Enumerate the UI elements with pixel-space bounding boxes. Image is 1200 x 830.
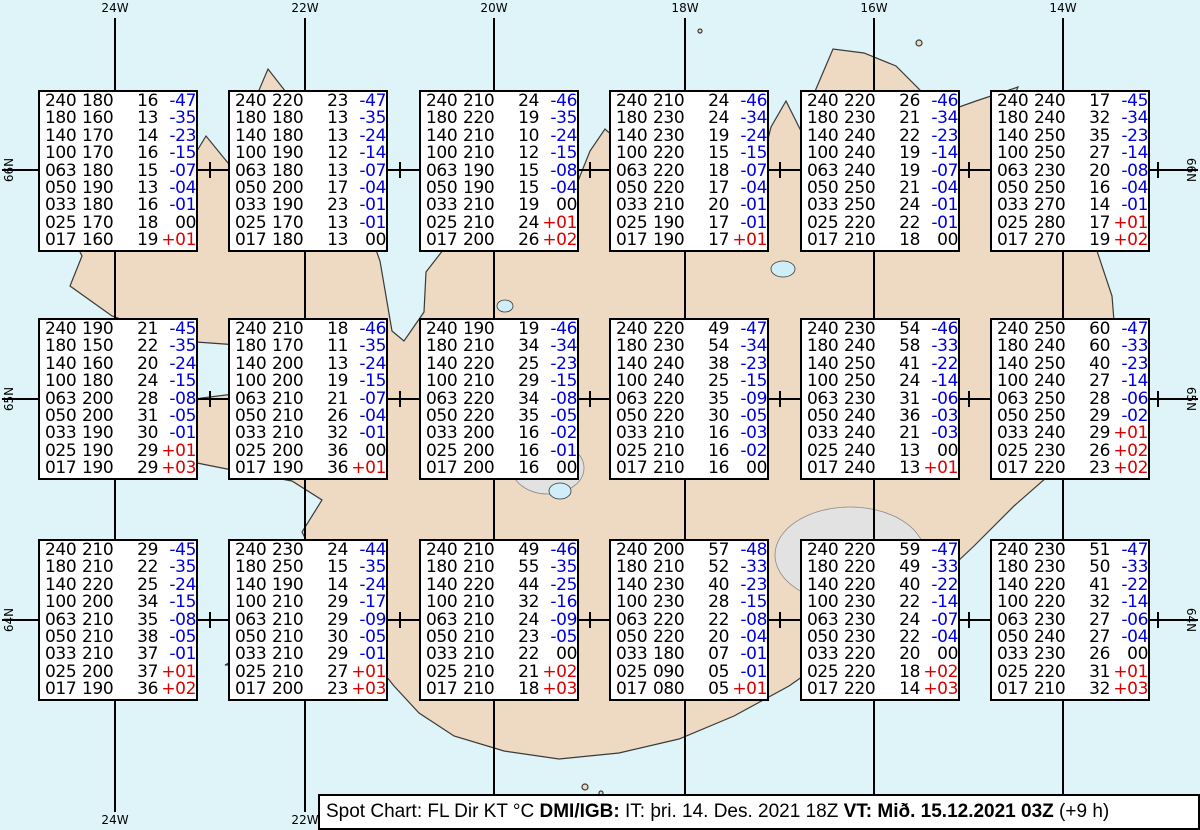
temp-cell: -15 (158, 594, 196, 611)
station-box-64N-14W: 24023051-4718023050-3314022041-221002203… (990, 539, 1150, 701)
station-box-66N-22W: 24022023-4718018013-3514018013-241001901… (228, 90, 388, 252)
station-box-65N-14W: 24025060-4718024060-3314025040-231002402… (990, 318, 1150, 480)
fl-cell: 017 (235, 681, 272, 698)
fl-cell: 100 (45, 373, 82, 390)
station-row: 10021029-17 (235, 594, 386, 611)
station-row: 01719036+02 (45, 681, 196, 698)
kt-cell: 32 (1079, 594, 1110, 611)
kt-cell: 19 (889, 145, 920, 162)
temp-cell: -14 (348, 145, 386, 162)
fl-cell: 017 (616, 460, 653, 477)
kt-cell: 27 (1079, 145, 1110, 162)
station-box-66N-20W: 24021024-4618022019-3514021010-241002101… (419, 90, 579, 252)
temp-cell: -15 (729, 594, 767, 611)
fl-cell: 100 (426, 373, 463, 390)
station-row: 10017016-15 (45, 145, 196, 162)
dir-cell: 230 (844, 594, 889, 611)
dir-cell: 210 (463, 681, 508, 698)
dir-cell: 220 (1034, 460, 1079, 477)
kt-cell: 12 (317, 145, 348, 162)
station-row: 10020019-15 (235, 373, 386, 390)
temp-cell: -15 (729, 145, 767, 162)
station-row: 10024027-14 (997, 373, 1148, 390)
caption-source: DMI/IGB: (540, 801, 620, 823)
dir-cell: 200 (82, 594, 127, 611)
kt-cell: 19 (317, 373, 348, 390)
kt-cell: 18 (889, 232, 920, 249)
station-row: 01721032+03 (997, 681, 1148, 698)
fl-cell: 017 (45, 232, 82, 249)
temp-cell: -14 (920, 145, 958, 162)
temp-cell: -17 (348, 594, 386, 611)
kt-cell: 23 (1079, 460, 1110, 477)
kt-cell: 19 (127, 232, 158, 249)
temp-cell: -14 (920, 373, 958, 390)
dir-cell: 170 (82, 145, 127, 162)
dir-cell: 250 (844, 373, 889, 390)
fl-cell: 100 (616, 145, 653, 162)
kt-cell: 28 (698, 594, 729, 611)
station-box-64N-24W: 24021029-4518021022-3514022025-241002003… (38, 539, 198, 701)
fl-cell: 017 (997, 460, 1034, 477)
station-row: 10024025-15 (616, 373, 767, 390)
fl-cell: 100 (997, 373, 1034, 390)
station-box-66N-14W: 24024017-4518024032-3414025035-231002502… (990, 90, 1150, 252)
dir-cell: 190 (653, 232, 698, 249)
temp-cell: 00 (348, 232, 386, 249)
station-row: 10020034-15 (45, 594, 196, 611)
dir-cell: 220 (1034, 594, 1079, 611)
kt-cell: 15 (698, 145, 729, 162)
temp-cell: -15 (158, 145, 196, 162)
dir-cell: 210 (463, 594, 508, 611)
caption-text: Spot Chart: FL Dir KT °C (326, 801, 540, 823)
fl-cell: 100 (235, 145, 272, 162)
dir-cell: 240 (653, 373, 698, 390)
dir-cell: 160 (82, 232, 127, 249)
temp-cell: +03 (1110, 681, 1148, 698)
station-row: 01721018+03 (426, 681, 577, 698)
dir-cell: 210 (1034, 681, 1079, 698)
kt-cell: 34 (127, 594, 158, 611)
dir-cell: 180 (272, 232, 317, 249)
dir-cell: 190 (82, 460, 127, 477)
kt-cell: 16 (508, 460, 539, 477)
fl-cell: 017 (807, 232, 844, 249)
temp-cell: +03 (920, 681, 958, 698)
dir-cell: 220 (653, 145, 698, 162)
temp-cell: +03 (539, 681, 577, 698)
station-row: 10019012-14 (235, 145, 386, 162)
kt-cell: 24 (127, 373, 158, 390)
kt-cell: 24 (889, 373, 920, 390)
station-row: 01719017+01 (616, 232, 767, 249)
temp-cell: +01 (920, 460, 958, 477)
station-row: 10024019-14 (807, 145, 958, 162)
station-row: 01722023+02 (997, 460, 1148, 477)
fl-cell: 100 (235, 373, 272, 390)
station-row: 01719029+03 (45, 460, 196, 477)
temp-cell: +01 (348, 460, 386, 477)
fl-cell: 017 (616, 232, 653, 249)
station-row: 10018024-15 (45, 373, 196, 390)
kt-cell: 23 (317, 681, 348, 698)
station-box-65N-22W: 24021018-4618017011-3514020013-241002001… (228, 318, 388, 480)
kt-cell: 13 (889, 460, 920, 477)
kt-cell: 27 (1079, 373, 1110, 390)
temp-cell: -14 (1110, 373, 1148, 390)
temp-cell: +01 (729, 232, 767, 249)
fl-cell: 100 (997, 594, 1034, 611)
fl-cell: 100 (426, 145, 463, 162)
dir-cell: 210 (653, 460, 698, 477)
dir-cell: 190 (272, 460, 317, 477)
fl-cell: 100 (807, 373, 844, 390)
fl-cell: 100 (807, 594, 844, 611)
kt-cell: 13 (317, 232, 348, 249)
station-row: 10023022-14 (807, 594, 958, 611)
station-row: 10022015-15 (616, 145, 767, 162)
station-row: 01722014+03 (807, 681, 958, 698)
dir-cell: 250 (1034, 145, 1079, 162)
station-row: 01719036+01 (235, 460, 386, 477)
dir-cell: 190 (272, 145, 317, 162)
station-box-66N-18W: 24021024-4618023024-3414023019-241002201… (609, 90, 769, 252)
station-box-64N-22W: 24023024-4418025015-3514019014-241002102… (228, 539, 388, 701)
temp-cell: -14 (1110, 145, 1148, 162)
kt-cell: 25 (698, 373, 729, 390)
fl-cell: 100 (616, 594, 653, 611)
station-row: 01716019+01 (45, 232, 196, 249)
station-box-65N-24W: 24019021-4518015022-3514016020-241001802… (38, 318, 198, 480)
fl-cell: 017 (45, 460, 82, 477)
dir-cell: 270 (1034, 232, 1079, 249)
temp-cell: -15 (729, 373, 767, 390)
station-row: 10021012-15 (426, 145, 577, 162)
caption-offset: (+9 h) (1054, 801, 1109, 823)
fl-cell: 017 (235, 232, 272, 249)
station-box-65N-16W: 24023054-4618024058-3314025041-221002502… (800, 318, 960, 480)
dir-cell: 200 (463, 460, 508, 477)
caption-valid-time: VT: Mið. 15.12.2021 03Z (844, 801, 1054, 823)
station-box-64N-16W: 24022059-4718022049-3314022040-221002302… (800, 539, 960, 701)
temp-cell: -15 (158, 373, 196, 390)
kt-cell: 19 (1079, 232, 1110, 249)
temp-cell: +03 (348, 681, 386, 698)
fl-cell: 017 (426, 460, 463, 477)
temp-cell: -15 (348, 373, 386, 390)
fl-cell: 017 (807, 681, 844, 698)
kt-cell: 36 (317, 460, 348, 477)
temp-cell: 00 (539, 460, 577, 477)
fl-cell: 017 (616, 681, 653, 698)
fl-cell: 017 (45, 681, 82, 698)
kt-cell: 22 (889, 594, 920, 611)
dir-cell: 210 (844, 232, 889, 249)
station-box-65N-20W: 24019019-4618021034-3414022025-231002102… (419, 318, 579, 480)
temp-cell: +02 (158, 681, 196, 698)
temp-cell: +03 (158, 460, 196, 477)
kt-cell: 16 (698, 460, 729, 477)
station-row: 10023028-15 (616, 594, 767, 611)
kt-cell: 32 (1079, 681, 1110, 698)
kt-cell: 29 (317, 594, 348, 611)
kt-cell: 05 (698, 681, 729, 698)
station-row: 0172101600 (616, 460, 767, 477)
station-row: 01720026+02 (426, 232, 577, 249)
kt-cell: 29 (508, 373, 539, 390)
fl-cell: 100 (807, 145, 844, 162)
temp-cell: +02 (539, 232, 577, 249)
fl-cell: 100 (45, 145, 82, 162)
station-row: 0171801300 (235, 232, 386, 249)
dir-cell: 240 (844, 460, 889, 477)
fl-cell: 017 (235, 460, 272, 477)
station-row: 10022032-14 (997, 594, 1148, 611)
temp-cell: -14 (1110, 594, 1148, 611)
station-box-64N-18W: 24020057-4818021052-3314023040-231002302… (609, 539, 769, 701)
fl-cell: 017 (997, 232, 1034, 249)
station-row: 01727019+02 (997, 232, 1148, 249)
dir-cell: 190 (82, 681, 127, 698)
kt-cell: 12 (508, 145, 539, 162)
temp-cell: +02 (1110, 232, 1148, 249)
dir-cell: 210 (463, 373, 508, 390)
temp-cell: +01 (729, 681, 767, 698)
dir-cell: 210 (463, 145, 508, 162)
dir-cell: 240 (1034, 373, 1079, 390)
fl-cell: 100 (235, 594, 272, 611)
fl-cell: 100 (616, 373, 653, 390)
station-row: 01708005+01 (616, 681, 767, 698)
fl-cell: 100 (426, 594, 463, 611)
temp-cell: -16 (539, 594, 577, 611)
temp-cell: +02 (1110, 460, 1148, 477)
dir-cell: 230 (653, 594, 698, 611)
kt-cell: 16 (127, 145, 158, 162)
dir-cell: 240 (844, 145, 889, 162)
station-box-65N-18W: 24022049-4718023054-3414024038-231002402… (609, 318, 769, 480)
fl-cell: 017 (426, 681, 463, 698)
station-box-66N-16W: 24022026-4618023021-3414024022-231002401… (800, 90, 960, 252)
kt-cell: 36 (127, 681, 158, 698)
kt-cell: 17 (698, 232, 729, 249)
stations-layer: 24018016-4718016013-3514017014-231001701… (0, 0, 1200, 830)
kt-cell: 18 (508, 681, 539, 698)
dir-cell: 200 (463, 232, 508, 249)
temp-cell: -14 (920, 594, 958, 611)
temp-cell: 00 (729, 460, 767, 477)
station-row: 0172101800 (807, 232, 958, 249)
kt-cell: 26 (508, 232, 539, 249)
dir-cell: 180 (82, 373, 127, 390)
temp-cell: 00 (920, 232, 958, 249)
fl-cell: 017 (426, 232, 463, 249)
temp-cell: -15 (539, 373, 577, 390)
fl-cell: 017 (997, 681, 1034, 698)
station-row: 10025024-14 (807, 373, 958, 390)
station-box-64N-20W: 24021049-4618021055-3514022044-251002103… (419, 539, 579, 701)
dir-cell: 220 (844, 681, 889, 698)
fl-cell: 017 (807, 460, 844, 477)
caption-issue-time: IT: þri. 14. Des. 2021 18Z (620, 801, 844, 823)
chart-caption: Spot Chart: FL Dir KT °C DMI/IGB: IT: þr… (318, 794, 1200, 830)
station-row: 10025027-14 (997, 145, 1148, 162)
fl-cell: 100 (997, 145, 1034, 162)
station-box-66N-24W: 24018016-4718016013-3514017014-231001701… (38, 90, 198, 252)
kt-cell: 32 (508, 594, 539, 611)
dir-cell: 200 (272, 681, 317, 698)
dir-cell: 210 (272, 594, 317, 611)
fl-cell: 100 (45, 594, 82, 611)
station-row: 10021029-15 (426, 373, 577, 390)
temp-cell: -15 (539, 145, 577, 162)
station-row: 0172001600 (426, 460, 577, 477)
station-row: 10021032-16 (426, 594, 577, 611)
temp-cell: +01 (158, 232, 196, 249)
kt-cell: 14 (889, 681, 920, 698)
dir-cell: 200 (272, 373, 317, 390)
dir-cell: 080 (653, 681, 698, 698)
kt-cell: 29 (127, 460, 158, 477)
station-row: 01720023+03 (235, 681, 386, 698)
station-row: 01724013+01 (807, 460, 958, 477)
